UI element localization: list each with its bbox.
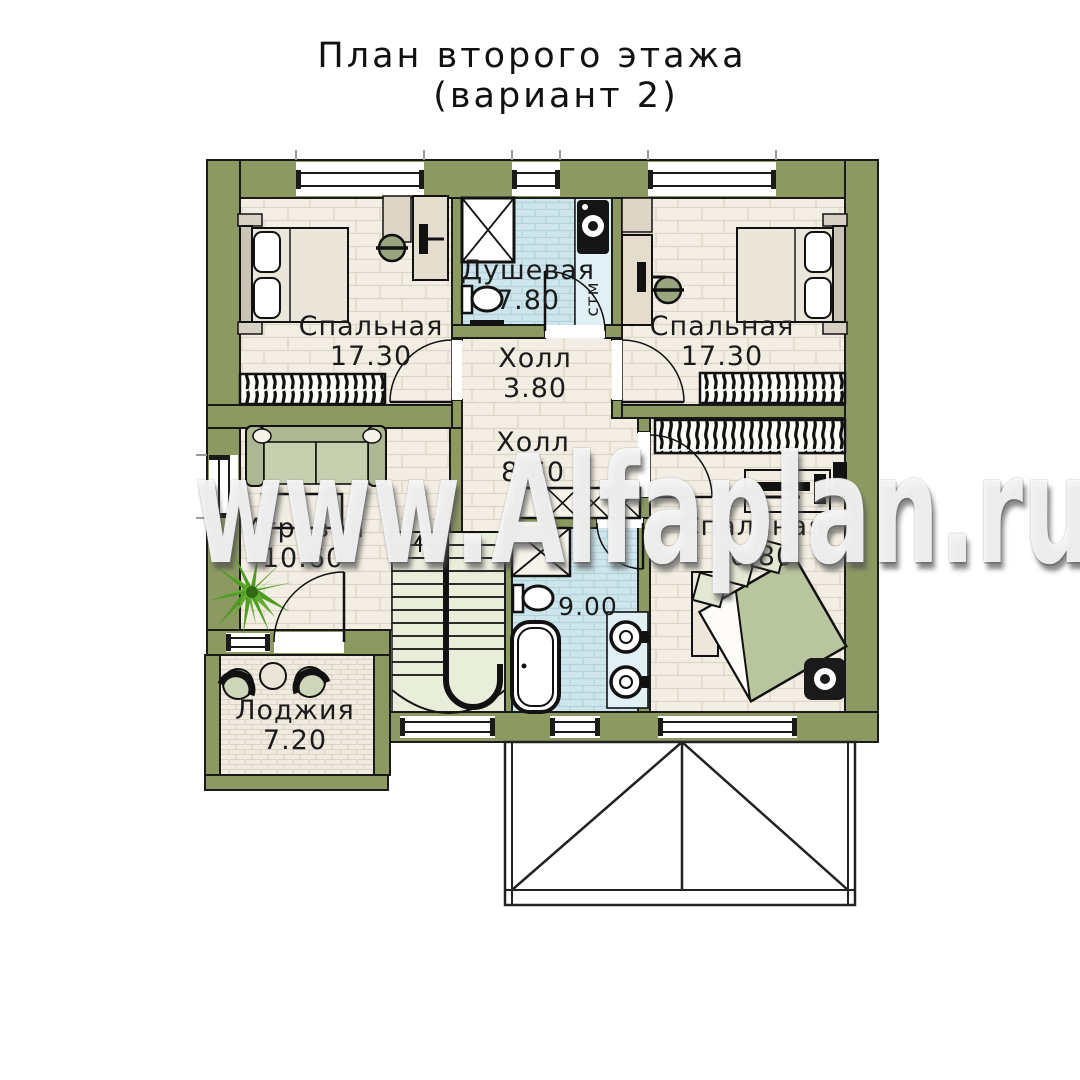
room-area: 20.80 — [681, 542, 826, 572]
title-line1: План второго этажа — [0, 36, 1072, 76]
vanity-sinks-icon — [607, 612, 649, 708]
nightstand-lamp-icon — [804, 658, 846, 700]
room-area: 17.30 — [299, 342, 444, 372]
wardrobe-icon — [655, 420, 845, 453]
room-label-hall-main: Холл 8.60 — [496, 428, 570, 488]
room-area: 17.30 — [650, 342, 795, 372]
room-area: 9.00 — [558, 592, 618, 621]
window-top-middle — [512, 162, 560, 196]
washing-machine-label: стм — [583, 281, 603, 316]
room-name: Спальная — [650, 311, 795, 342]
window-left-playroom — [209, 455, 238, 518]
room-label-bathroom: 9.00 — [558, 592, 618, 622]
roof-outline-below — [505, 742, 855, 905]
window-top-left — [296, 162, 424, 196]
window-loggia — [226, 633, 270, 652]
room-name: Спальная — [299, 311, 444, 342]
room-label-hall-upper: Холл 3.80 — [498, 344, 572, 404]
sofa-icon — [246, 426, 386, 486]
shelf-icon — [470, 320, 504, 326]
desk-icon — [413, 196, 448, 280]
tv-icon — [833, 462, 847, 494]
room-label-bedroom-left: Спальная 17.30 — [299, 312, 444, 372]
round-table-icon — [260, 663, 286, 689]
cabinet-icon — [622, 198, 652, 232]
shower-cabin-icon — [462, 198, 514, 262]
room-name: Душевая — [461, 255, 595, 286]
bathtub-icon — [512, 622, 559, 712]
washing-machine-icon — [577, 200, 609, 254]
window-bottom-bathroom — [550, 716, 600, 738]
door-gap-bedroom-right — [612, 340, 622, 400]
room-name: Лоджия — [235, 695, 355, 726]
window-bottom-stairs — [400, 716, 495, 738]
room-area: 7.80 — [461, 286, 595, 316]
room-area: 8.60 — [496, 458, 570, 488]
door-gap-bedroom-left — [452, 340, 462, 400]
door-gap-bathroom — [597, 518, 643, 528]
room-label-shower: Душевая 7.80 — [461, 256, 595, 316]
room-name: Холл — [498, 343, 572, 374]
door-gap-loggia — [274, 632, 344, 653]
room-label-loggia: Лоджия 7.20 — [235, 696, 355, 756]
drawing-title: План второго этажа (вариант 2) — [0, 36, 1080, 116]
room-area: 3.80 — [498, 374, 572, 404]
room-label-bedroom-master: Спальная 20.80 — [681, 512, 826, 572]
room-name: Холл — [496, 427, 570, 458]
toilet-icon — [513, 585, 553, 612]
room-area: 10.60 — [241, 544, 365, 574]
wardrobe-icon — [240, 374, 385, 404]
door-gap-shower — [545, 325, 605, 338]
room-area: 7.20 — [235, 726, 355, 756]
room-label-bedroom-right: Спальная 17.30 — [650, 312, 795, 372]
room-name: Спальная — [681, 511, 826, 542]
room-name: Игровая — [241, 513, 365, 544]
window-top-right — [648, 162, 776, 196]
room-label-playroom: Игровая 10.60 — [241, 514, 365, 574]
title-line2: (вариант 2) — [16, 76, 1080, 116]
window-bottom-master — [658, 716, 797, 738]
wardrobe-icon — [700, 373, 845, 403]
